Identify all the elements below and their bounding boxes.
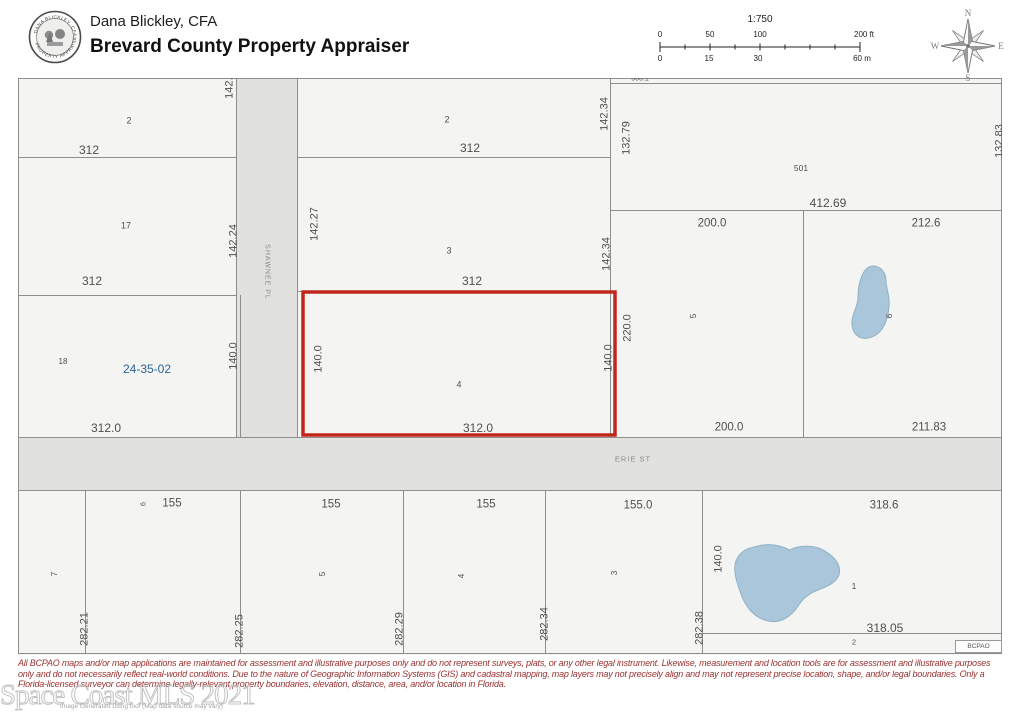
disclaimer-line-1: All BCPAO maps and/or map applications a…	[18, 658, 1018, 669]
dimension-label: 312.0	[91, 422, 121, 434]
lot-number-label: 4	[458, 574, 466, 578]
dimension-label: 140.0	[314, 345, 325, 373]
bcpao-stamp: BCPAO	[955, 640, 1002, 653]
pond-lot-1	[735, 545, 840, 622]
appraiser-seal-logo: DANA BLICKLEY, CFA PROPERTY APPRAISER	[27, 9, 83, 65]
compass-n: N	[965, 8, 972, 18]
dimension-label: 312	[462, 275, 482, 287]
dimension-label: 200.0	[698, 218, 727, 230]
scale-m-60: 60 m	[853, 54, 871, 63]
dimension-label: 142.34	[602, 237, 613, 271]
dimension-label: 282.38	[695, 611, 706, 645]
lot-number-label: 2	[444, 116, 449, 125]
dimension-label: 282.29	[395, 612, 406, 646]
map-canvas: 2312142.2417142.243121824-35-02140.0312.…	[18, 78, 1002, 655]
scale-m-15: 15	[705, 54, 714, 63]
dimension-label: 220.0	[623, 314, 634, 342]
parcel-id-label: 24-35-02	[123, 363, 171, 375]
dimension-label: 155	[321, 499, 340, 511]
compass-s: S	[965, 73, 970, 82]
lot-number-label: 18	[59, 358, 68, 366]
lot-number-label: 6	[141, 502, 148, 506]
scale-bar-ticks	[648, 41, 878, 53]
bcpao-map-page: DANA BLICKLEY, CFA PROPERTY APPRAISER Da…	[0, 0, 1024, 725]
compass-e: E	[998, 41, 1004, 51]
dimension-label: 142.27	[310, 207, 321, 241]
lot-number-label: 3	[611, 571, 619, 575]
scale-bar: 1:750 0 50 100 200 ft 0	[648, 14, 878, 66]
lot-number-label: 3	[446, 247, 451, 256]
dimension-label: 140.0	[714, 545, 725, 573]
dimension-label: 132.83	[995, 124, 1003, 158]
mls-watermark-subtext: Image Generated using tool (Map data sou…	[60, 703, 223, 710]
scale-m-0: 0	[658, 54, 662, 63]
disclaimer-line-2: only and do not necessarily reflect real…	[18, 669, 1018, 680]
lot-number-label: 2	[126, 117, 131, 126]
scale-feet-0: 0	[658, 30, 662, 39]
lot-number-label: 6	[885, 314, 894, 319]
street-name-label: ERIE ST	[615, 455, 651, 463]
dimension-label: 312	[79, 144, 99, 156]
appraiser-title: Brevard County Property Appraiser	[90, 36, 409, 58]
scale-feet-200: 200 ft	[854, 30, 874, 39]
lot-number-label: 1	[852, 582, 857, 591]
dimension-label: 312.0	[463, 422, 493, 434]
dimension-label: 142.34	[600, 97, 611, 131]
lot-number-label: 4	[456, 381, 461, 390]
dimension-label: 500.1	[631, 78, 649, 83]
scale-ratio: 1:750	[648, 14, 872, 25]
dimension-label: 282.21	[80, 612, 91, 646]
pond-lot-6	[852, 266, 889, 338]
header: DANA BLICKLEY, CFA PROPERTY APPRAISER Da…	[0, 0, 1024, 78]
dimension-label: 140.0	[604, 344, 615, 372]
lot-number-label: 501	[794, 164, 808, 173]
dimension-label: 312	[82, 275, 102, 287]
lot-number-label: 17	[121, 222, 131, 231]
lot-number-label: 5	[689, 314, 698, 319]
dimension-label: 412.69	[810, 197, 847, 209]
dimension-label: 142.24	[225, 78, 236, 99]
subject-parcel-outline	[303, 292, 615, 435]
appraiser-name: Dana Blickley, CFA	[90, 13, 217, 30]
scale-feet-100: 100	[753, 30, 766, 39]
scale-feet-50: 50	[706, 30, 715, 39]
dimension-label: 318.6	[870, 500, 899, 512]
dimension-label: 282.34	[540, 607, 551, 641]
dimension-label: 312	[460, 142, 480, 154]
dimension-label: 142.24	[229, 224, 240, 258]
dimension-label: 212.6	[912, 218, 941, 230]
lot-number-label: 7	[51, 572, 59, 576]
dimension-label: 155.0	[624, 500, 653, 512]
lot-number-label: 5	[319, 572, 327, 576]
dimension-label: 155	[162, 498, 181, 510]
dimension-label: 318.05	[867, 622, 904, 634]
lot-number-label: 2	[852, 638, 856, 646]
dimension-label: 282.25	[235, 614, 246, 648]
dimension-label: 155	[476, 499, 495, 511]
street-erie-st	[18, 437, 1002, 490]
compass-rose-icon: N E S W	[930, 6, 1006, 82]
dimension-label: 211.83	[912, 422, 946, 434]
dimension-label: 140.0	[229, 342, 240, 370]
street-name-label: SHAWNEE PL	[264, 244, 271, 300]
compass-w: W	[931, 41, 940, 51]
dimension-label: 200.0	[715, 422, 744, 434]
scale-m-30: 30	[754, 54, 763, 63]
dimension-label: 132.79	[622, 121, 633, 155]
seal-art	[47, 42, 63, 46]
